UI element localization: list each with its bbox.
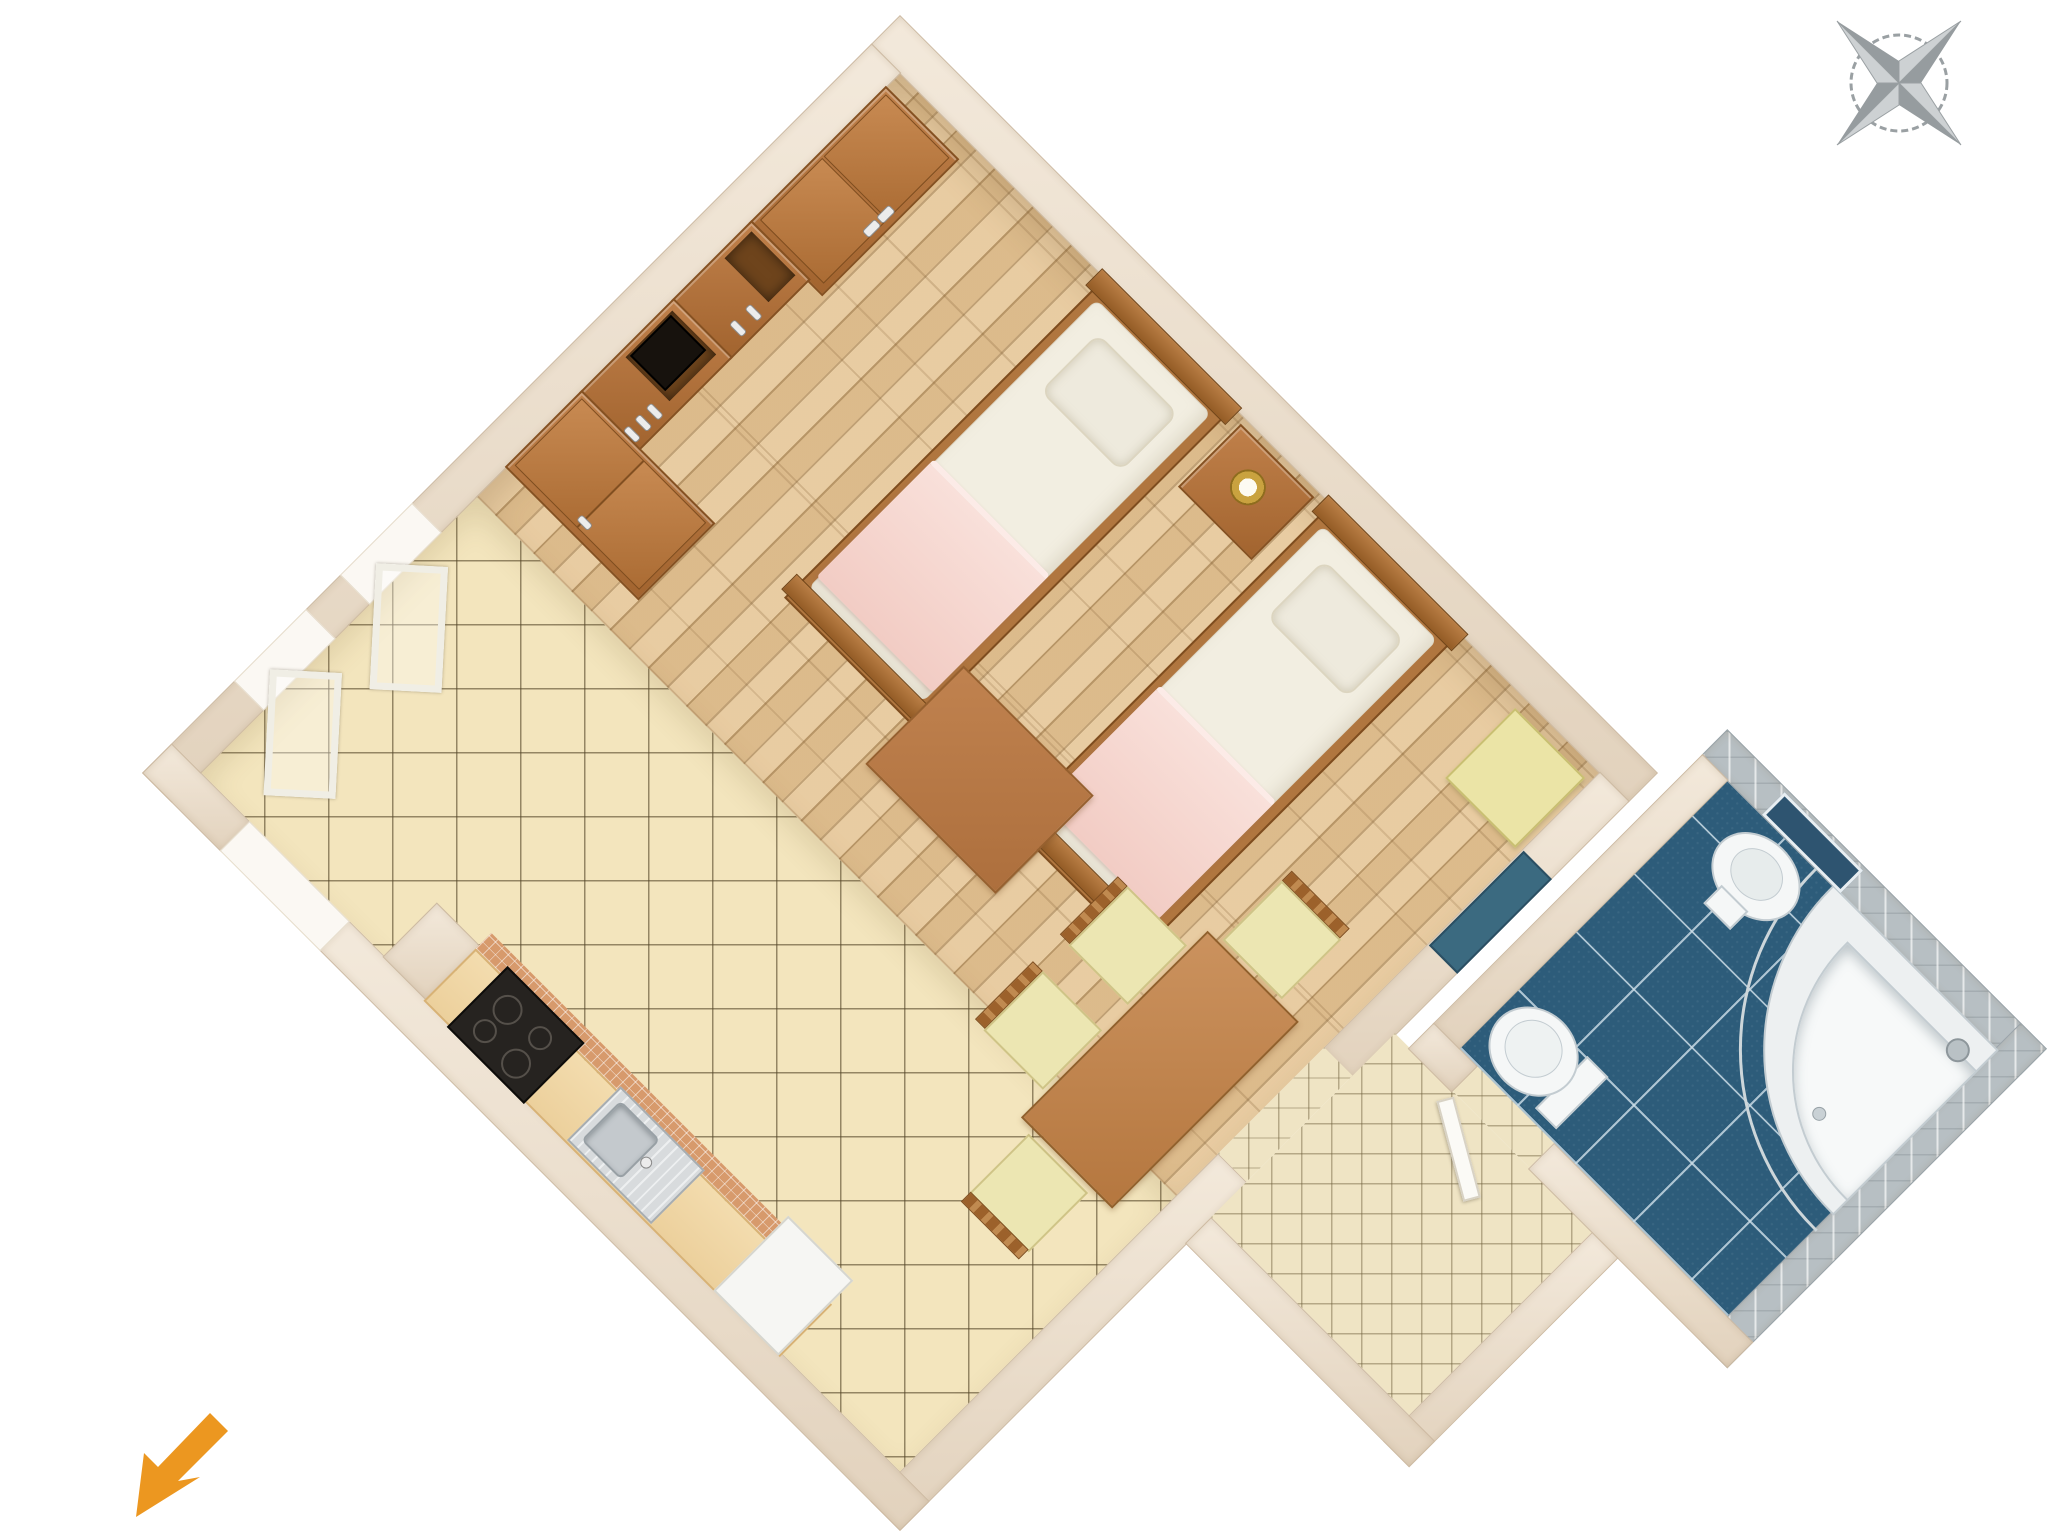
open-window-1 [370,563,448,693]
drawer-handle [634,414,652,432]
stove-burner [495,1042,537,1084]
floor-plan-stage [0,0,2048,1538]
drawer-handle [645,402,663,420]
drawer-handle [729,319,747,337]
open-window-2 [263,669,341,799]
compass-rose-icon [1794,0,2004,198]
stove-burner [523,1021,557,1055]
drawer-handle [744,303,762,321]
entrance-arrow-icon [112,1405,247,1530]
